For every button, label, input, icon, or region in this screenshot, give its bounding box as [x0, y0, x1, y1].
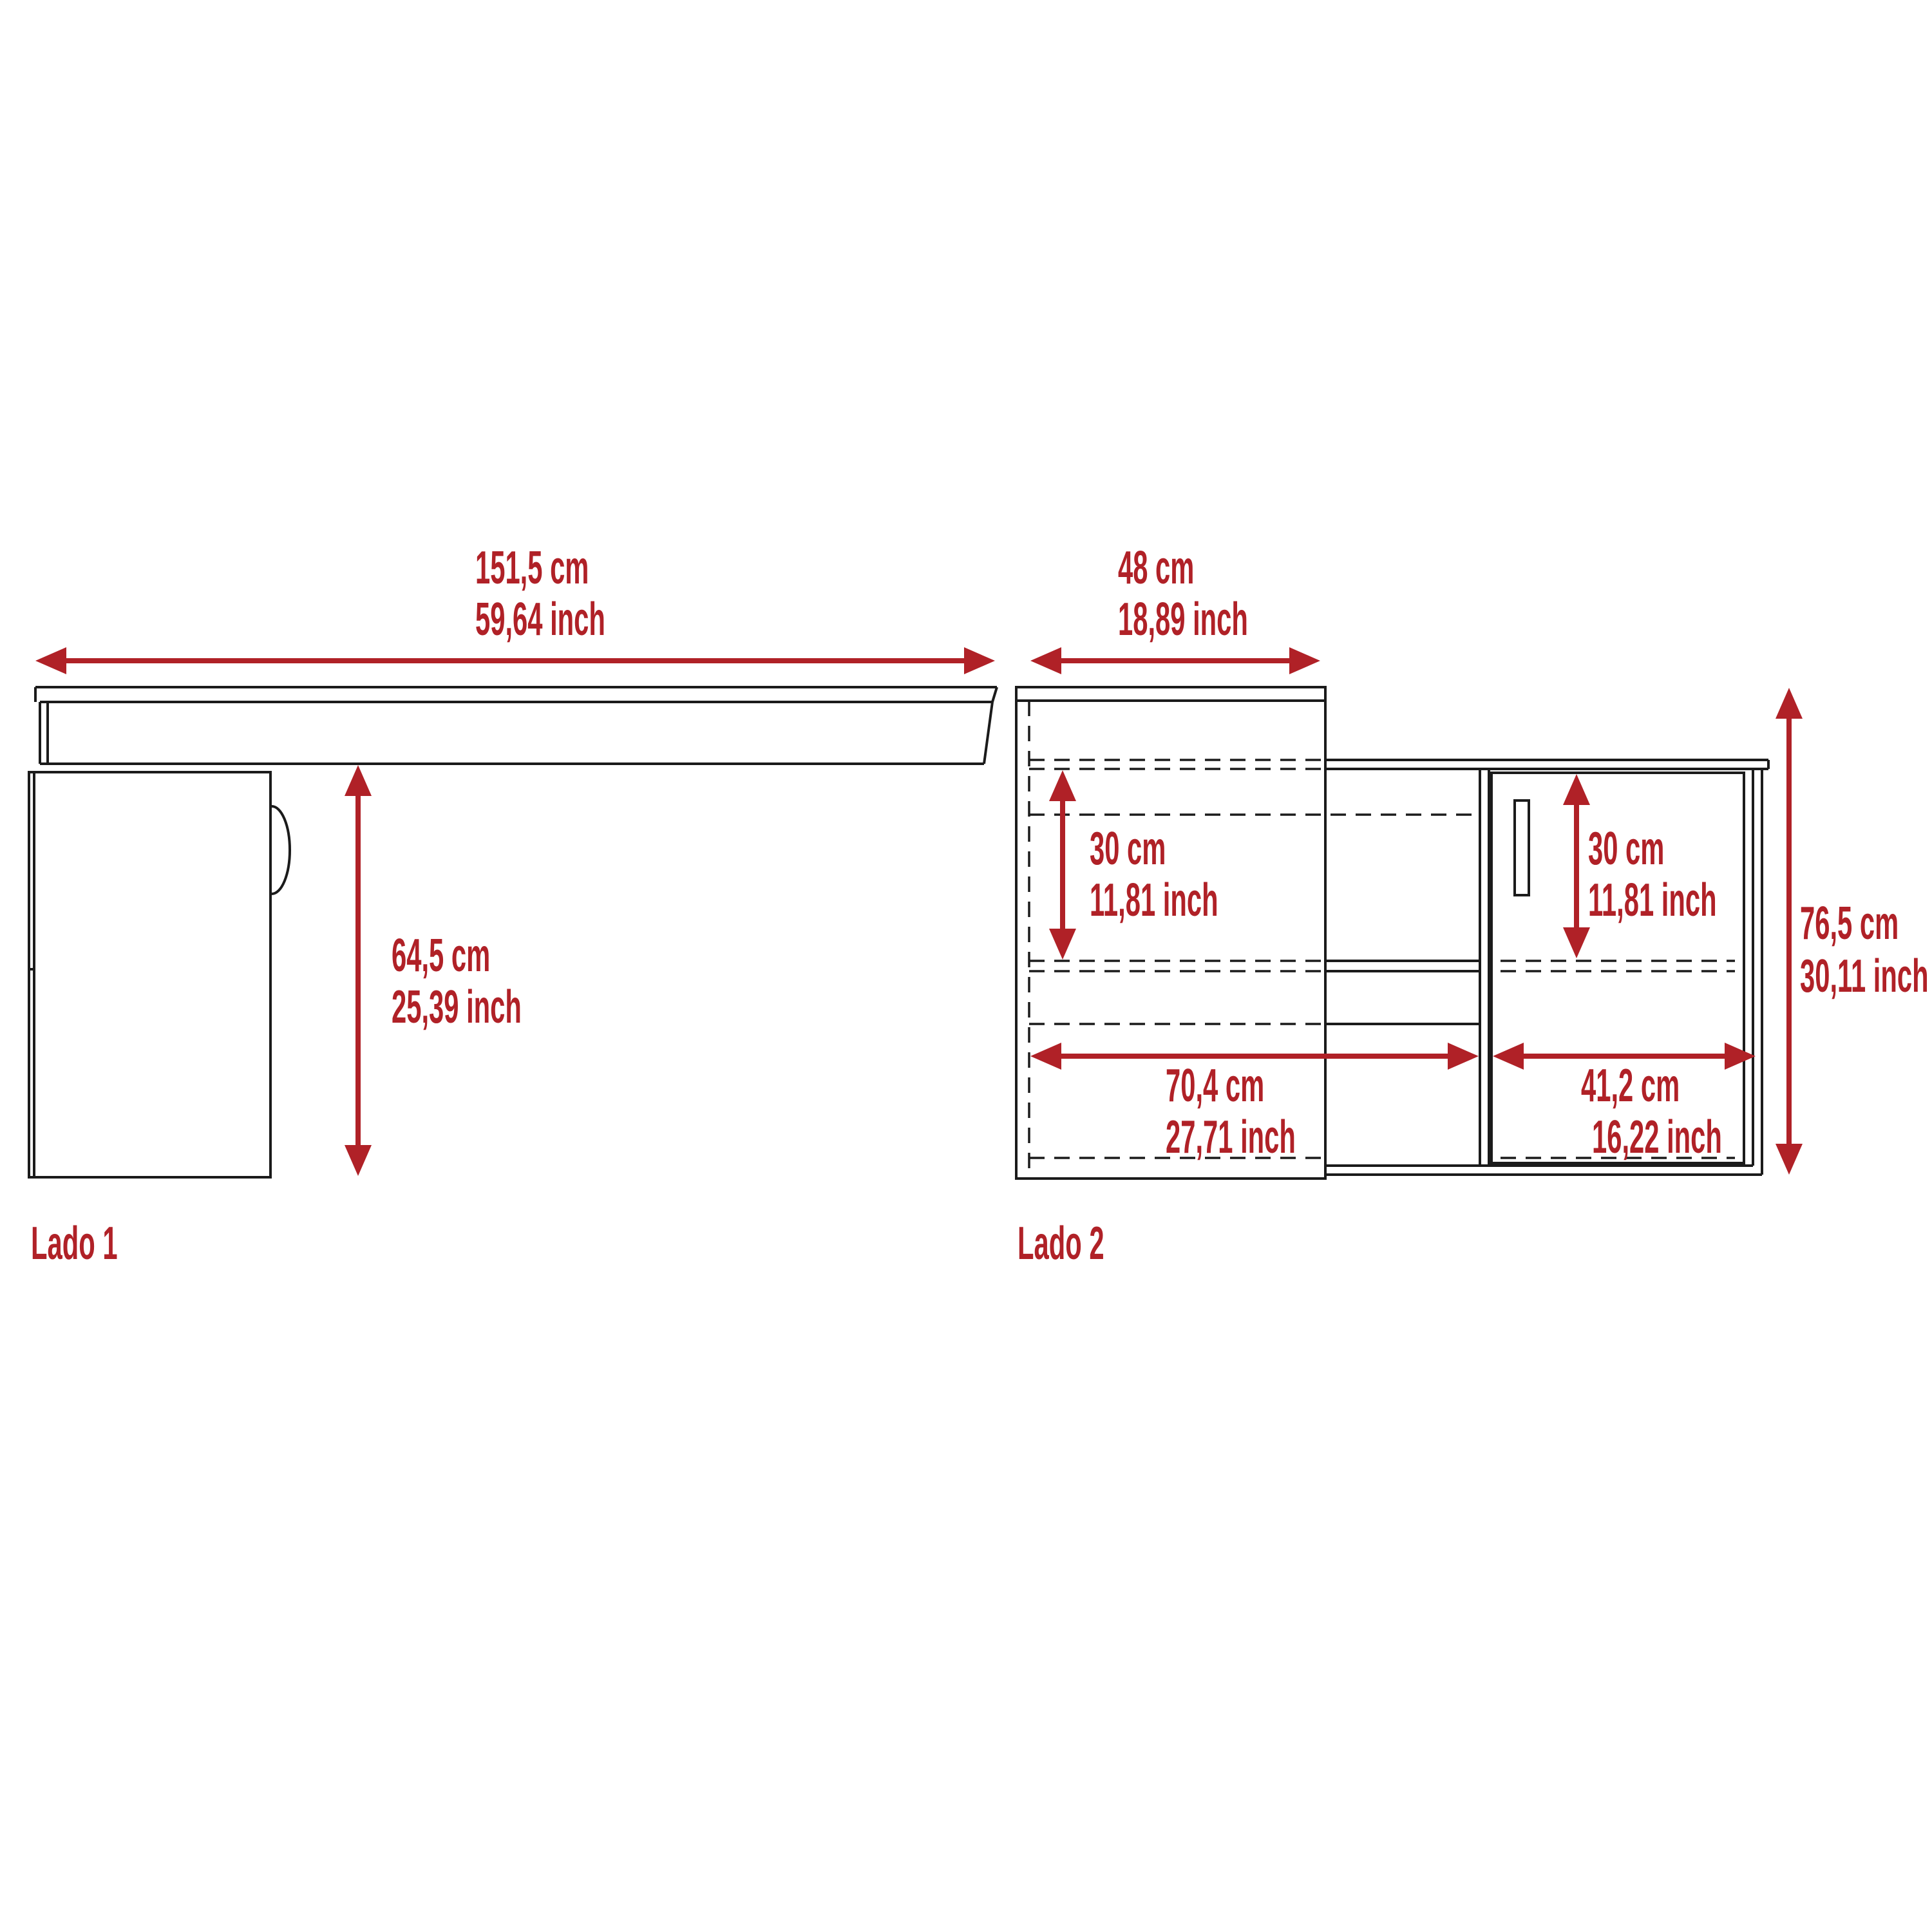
dimension-label-lado1-width-cm: 151,5 cm — [475, 542, 589, 594]
dimension-label-total-height-cm: 76,5 cm — [1800, 898, 1899, 949]
open-width-inch-text: 27,71 inch — [1166, 1112, 1296, 1163]
lado1-width-inch-text: 59,64 inch — [475, 594, 605, 645]
lado2-caption: Lado 2 — [1018, 1218, 1104, 1269]
dimension-arrow-lado1-width — [35, 647, 995, 674]
furniture-dimension-diagram: 151,5 cm 59,64 inch 48 cm 18,89 inch 64,… — [0, 0, 1932, 1932]
lado1-width-cm-text: 151,5 cm — [475, 542, 589, 594]
dimension-label-door-opening-inch: 11,81 inch — [1588, 875, 1717, 926]
desk-apron-right-edge — [984, 702, 992, 764]
dimension-label-lado2-depth-inch: 18,89 inch — [1118, 594, 1248, 645]
lado1-caption: Lado 1 — [31, 1218, 118, 1269]
diagram-svg: 151,5 cm 59,64 inch 48 cm 18,89 inch 64,… — [0, 0, 1932, 1932]
total-height-cm-text: 76,5 cm — [1800, 898, 1899, 949]
door-opening-inch-text: 11,81 inch — [1588, 875, 1717, 926]
hutch-opening-inch-text: 11,81 inch — [1090, 875, 1218, 926]
lado2-depth-inch-text: 18,89 inch — [1118, 594, 1248, 645]
dimension-label-open-width-inch: 27,71 inch — [1166, 1112, 1296, 1163]
dimension-label-lado1-height-cm: 64,5 cm — [392, 930, 490, 981]
door-width-inch-text: 16,22 inch — [1592, 1112, 1722, 1163]
dimension-label-lado2-depth-cm: 48 cm — [1118, 542, 1194, 594]
door-handle-slot — [1515, 800, 1529, 895]
lado2-depth-cm-text: 48 cm — [1118, 542, 1194, 594]
cabinet-outline — [29, 772, 270, 1177]
door-width-cm-text: 41,2 cm — [1581, 1060, 1680, 1112]
dimension-label-lado1-height-inch: 25,39 inch — [392, 981, 522, 1033]
dimension-label-lado1-width-inch: 59,64 inch — [475, 594, 605, 645]
open-width-cm-text: 70,4 cm — [1166, 1060, 1264, 1112]
dimension-arrow-lado1-height — [345, 765, 372, 1176]
lado1-drawing — [29, 687, 997, 1177]
lado2-caption-text: Lado 2 — [1018, 1218, 1104, 1269]
dimension-arrow-door-opening — [1563, 774, 1590, 958]
dimension-label-hutch-opening-cm: 30 cm — [1090, 823, 1166, 875]
dimension-arrows — [35, 647, 1803, 1176]
lado1-caption-text: Lado 1 — [31, 1218, 118, 1269]
dimension-arrow-total-height — [1776, 688, 1803, 1175]
total-height-inch-text: 30,11 inch — [1800, 951, 1929, 1002]
dimension-arrow-lado2-depth — [1030, 647, 1320, 674]
cabinet-door-handle-arc — [272, 806, 290, 894]
dimension-label-door-width-inch: 16,22 inch — [1592, 1112, 1722, 1163]
dimension-label-door-width-cm: 41,2 cm — [1581, 1060, 1680, 1112]
dimension-label-total-height-inch: 30,11 inch — [1800, 951, 1929, 1002]
dimension-arrow-hutch-opening — [1049, 770, 1076, 960]
dimension-label-door-opening-cm: 30 cm — [1588, 823, 1664, 875]
dimension-label-open-width-cm: 70,4 cm — [1166, 1060, 1264, 1112]
hutch-opening-cm-text: 30 cm — [1090, 823, 1166, 875]
lado1-height-inch-text: 25,39 inch — [392, 981, 522, 1033]
dimension-label-hutch-opening-inch: 11,81 inch — [1090, 875, 1218, 926]
desk-top-right-edge — [992, 687, 997, 702]
lado1-height-cm-text: 64,5 cm — [392, 930, 490, 981]
door-opening-cm-text: 30 cm — [1588, 823, 1664, 875]
